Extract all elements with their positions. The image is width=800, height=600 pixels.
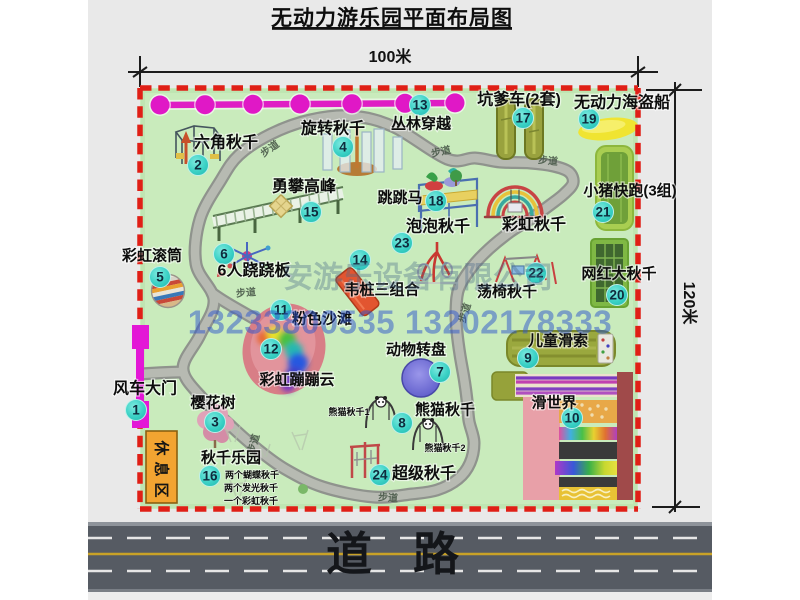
svg-text:100米: 100米 (369, 47, 413, 66)
svg-text:120米: 120米 (680, 282, 699, 326)
svg-text:跳跳马: 跳跳马 (377, 189, 422, 207)
svg-text:7: 7 (436, 365, 444, 380)
svg-text:丛林穿越: 丛林穿越 (391, 115, 452, 133)
svg-text:泡泡秋千: 泡泡秋千 (406, 217, 470, 236)
svg-text:网红大秋千: 网红大秋千 (581, 265, 656, 283)
svg-text:风车大门: 风车大门 (113, 379, 177, 398)
svg-text:15: 15 (303, 205, 319, 220)
svg-text:24: 24 (372, 468, 388, 483)
svg-text:息: 息 (153, 461, 171, 476)
svg-text:16: 16 (202, 469, 218, 484)
svg-text:六角秋千: 六角秋千 (194, 133, 258, 152)
svg-text:滑世界: 滑世界 (531, 394, 576, 412)
svg-text:两个发光秋千: 两个发光秋千 (224, 482, 278, 493)
svg-text:彩虹蹦蹦云: 彩虹蹦蹦云 (258, 371, 334, 389)
svg-text:休: 休 (153, 439, 171, 456)
svg-text:动物转盘: 动物转盘 (386, 341, 446, 359)
svg-text:樱花树: 樱花树 (190, 394, 235, 412)
svg-text:5: 5 (156, 270, 164, 285)
svg-text:熊猫秋千: 熊猫秋千 (415, 401, 475, 419)
svg-text:路: 路 (413, 528, 460, 580)
svg-text:17: 17 (515, 111, 530, 126)
svg-text:1: 1 (132, 403, 140, 418)
svg-text:无动力游乐园平面布局图: 无动力游乐园平面布局图 (271, 6, 513, 30)
svg-text:2: 2 (194, 158, 202, 173)
svg-text:8: 8 (398, 416, 406, 431)
svg-text:12: 12 (263, 342, 278, 357)
svg-text:13: 13 (412, 98, 428, 113)
svg-text:6: 6 (220, 247, 228, 262)
svg-text:安游乐设备有限公司: 安游乐设备有限公司 (283, 261, 553, 295)
svg-text:熊猫秋千1: 熊猫秋千1 (328, 406, 369, 417)
svg-text:坑爹车(2套): 坑爹车(2套) (477, 90, 561, 109)
svg-text:18: 18 (428, 194, 444, 209)
svg-text:9: 9 (524, 351, 532, 366)
svg-text:道: 道 (326, 528, 372, 580)
svg-text:彩虹秋千: 彩虹秋千 (501, 215, 566, 234)
svg-text:10: 10 (564, 411, 579, 426)
svg-text:两个蝴蝶秋千: 两个蝴蝶秋千 (225, 469, 279, 480)
svg-text:一个彩虹秋千: 一个彩虹秋千 (224, 495, 278, 506)
svg-text:23: 23 (394, 236, 410, 251)
svg-text:区: 区 (153, 482, 170, 497)
svg-text:6人跷跷板: 6人跷跷板 (218, 261, 292, 280)
svg-text:超级秋千: 超级秋千 (391, 464, 456, 483)
svg-text:熊猫秋千2: 熊猫秋千2 (424, 442, 465, 453)
svg-text:秋千乐园: 秋千乐园 (201, 449, 261, 467)
svg-text:4: 4 (339, 140, 347, 155)
svg-text:旋转秋千: 旋转秋千 (300, 119, 365, 138)
svg-text:21: 21 (595, 205, 611, 220)
svg-text:19: 19 (581, 112, 596, 127)
svg-text:3: 3 (211, 415, 219, 430)
svg-text:13233800535 13202178333: 13233800535 13202178333 (188, 304, 612, 341)
svg-text:小猪快跑(3组): 小猪快跑(3组) (583, 182, 676, 200)
svg-text:无动力海盗船: 无动力海盗船 (573, 93, 670, 112)
svg-text:彩虹滚筒: 彩虹滚筒 (121, 247, 182, 265)
svg-text:勇攀高峰: 勇攀高峰 (272, 177, 337, 196)
svg-text:20: 20 (609, 288, 624, 303)
